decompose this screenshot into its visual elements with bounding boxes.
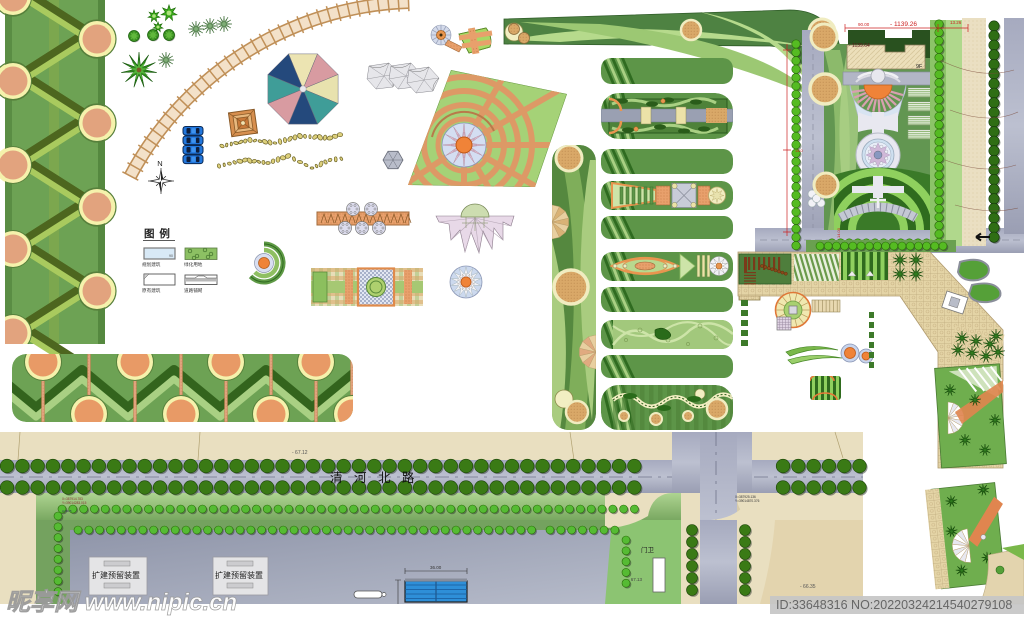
svg-text:Y=39014870.376: Y=39014870.376	[735, 499, 760, 503]
svg-text:规划建筑: 规划建筑	[142, 261, 161, 268]
svg-text:门卫: 门卫	[641, 545, 655, 554]
svg-text:道路铺砌: 道路铺砌	[184, 287, 203, 294]
svg-text:- 67.12: - 67.12	[292, 450, 308, 456]
svg-text:昵享网 www.nipic.cn: 昵享网 www.nipic.cn	[6, 589, 237, 616]
svg-text:- 66.35: - 66.35	[800, 584, 816, 590]
svg-text:原有建筑: 原有建筑	[142, 287, 161, 294]
svg-text:扩建预留装置: 扩建预留装置	[215, 570, 263, 580]
svg-text:A=60.5: A=60.5	[62, 509, 72, 513]
svg-text:ID:33648316 NO:202203242145402: ID:33648316 NO:20220324214540279108	[776, 598, 1012, 612]
svg-text:绿化用地: 绿化用地	[184, 261, 203, 268]
svg-text:90.00: 90.00	[858, 22, 870, 27]
svg-text:Y=39014283.015: Y=39014283.015	[62, 501, 87, 505]
svg-text:扩建预留装置: 扩建预留装置	[92, 570, 140, 580]
svg-text:14.00: 14.00	[836, 227, 841, 238]
svg-text:清 河 北 路: 清 河 北 路	[330, 470, 418, 485]
svg-text:· 1139.64: · 1139.64	[849, 43, 870, 49]
svg-text:图 例: 图 例	[144, 227, 171, 240]
svg-text:13.26: 13.26	[950, 20, 962, 25]
svg-text:- 1139.26: - 1139.26	[890, 21, 917, 28]
svg-text:- 67.13: - 67.13	[628, 577, 643, 582]
svg-text:90: 90	[169, 254, 173, 258]
svg-text:9F: 9F	[916, 64, 923, 70]
svg-text:14.0: 14.0	[795, 148, 804, 153]
svg-text:36.00: 36.00	[430, 565, 442, 570]
svg-text:N: N	[157, 159, 162, 168]
